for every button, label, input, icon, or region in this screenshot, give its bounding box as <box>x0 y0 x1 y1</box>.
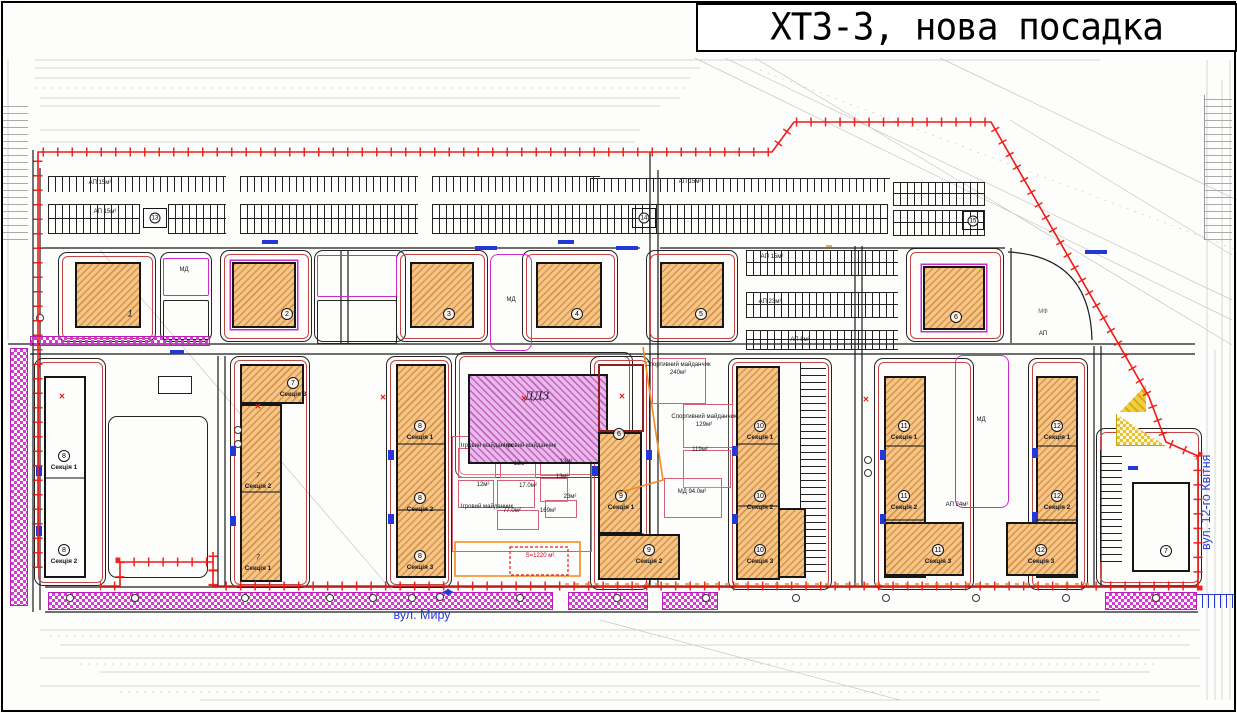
street-label-12-kvitnya: вул. 12-го Квітня <box>1199 390 1213 550</box>
drawing-title: ХТЗ-3, нова посадка <box>770 6 1163 49</box>
street-label-myru: вул. Миру <box>352 608 492 622</box>
title-box: ХТЗ-3, нова посадка <box>696 3 1237 52</box>
boundary-and-overlay-lines <box>0 0 1237 713</box>
site-plan-drawing: 1234561314158Секція 18Секція 27Секція 37… <box>0 0 1237 713</box>
